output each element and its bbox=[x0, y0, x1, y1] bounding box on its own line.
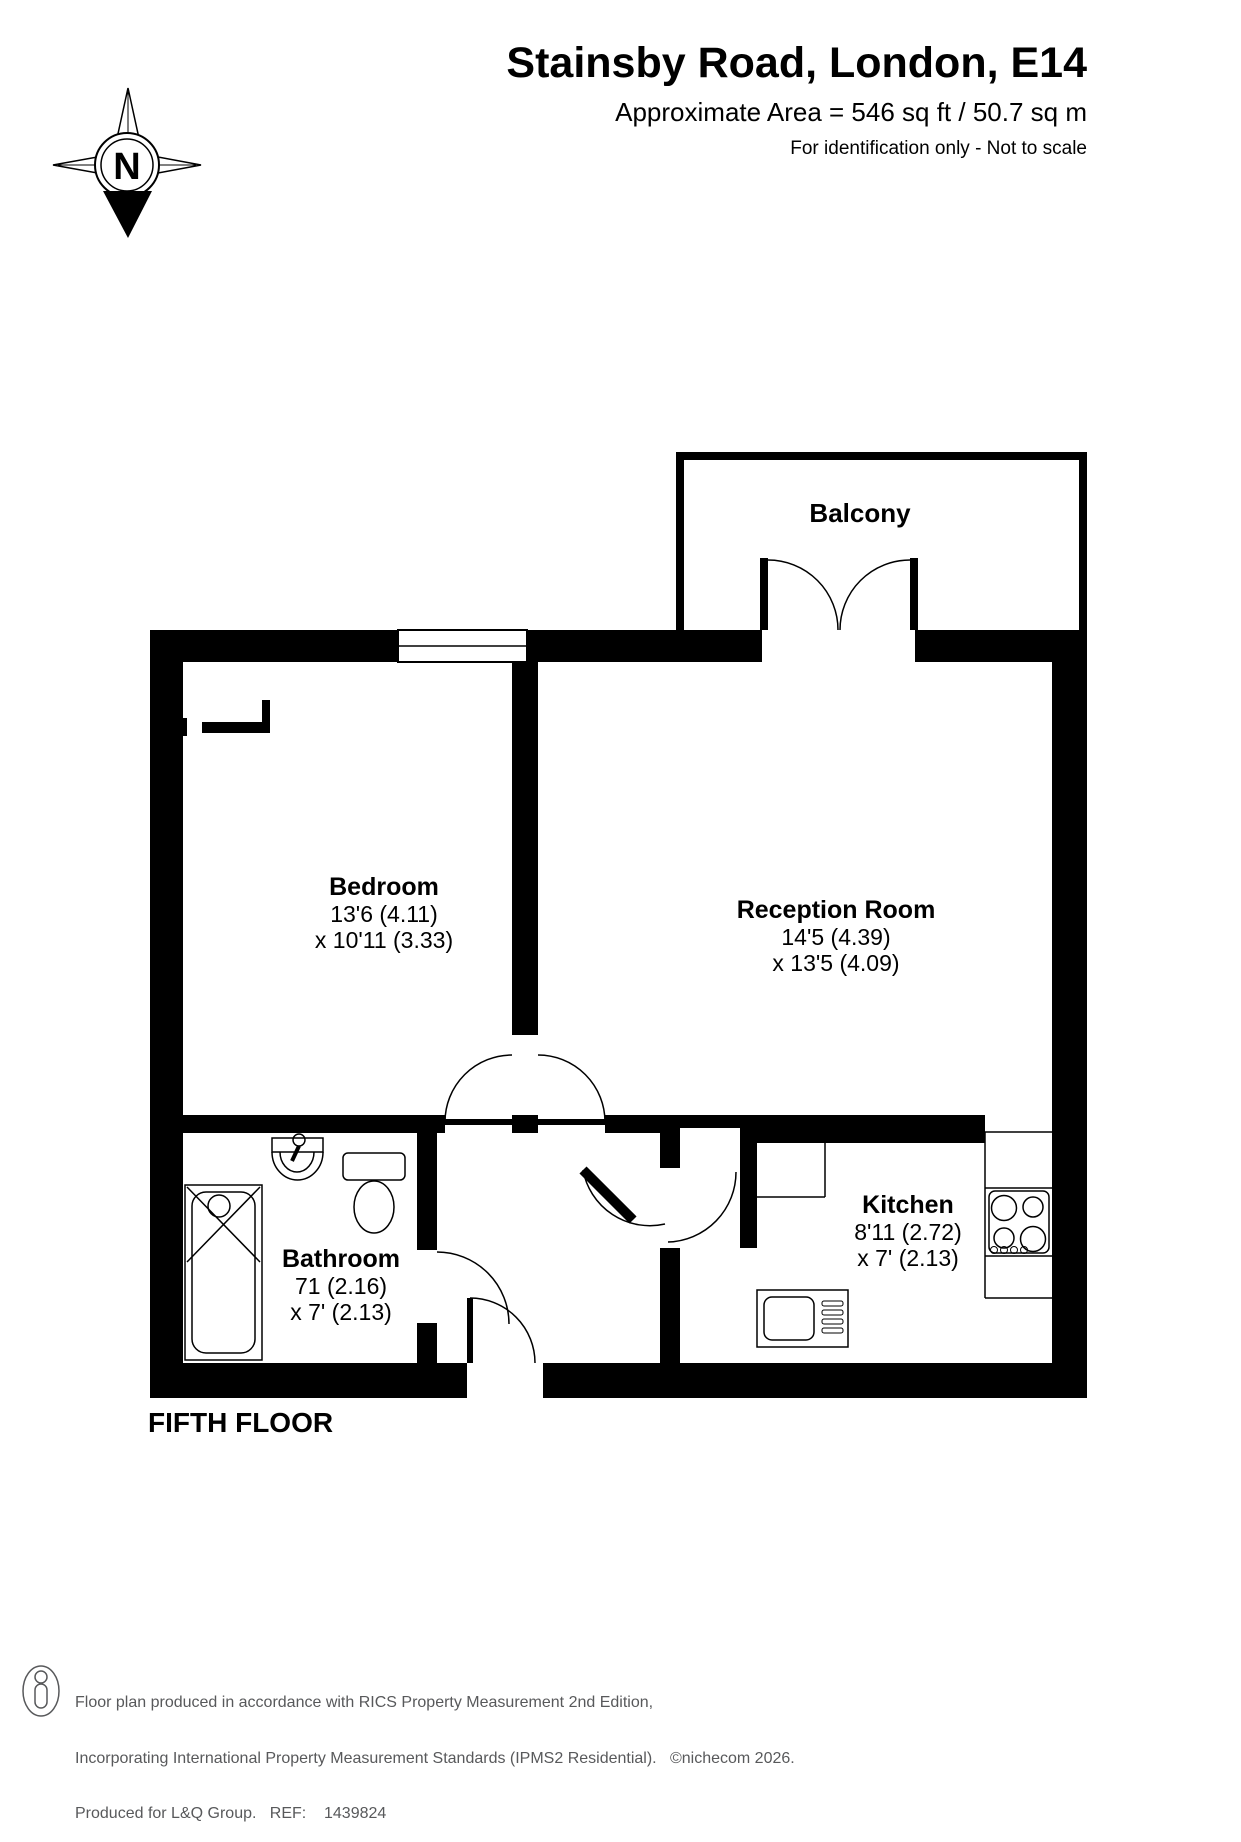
balcony-walls bbox=[676, 452, 1087, 630]
approximate-area: Approximate Area = 546 sq ft / 50.7 sq m bbox=[0, 97, 1087, 128]
floor-label: FIFTH FLOOR bbox=[148, 1407, 333, 1439]
entrance-door-arc bbox=[470, 1298, 535, 1363]
room-name: Kitchen bbox=[854, 1192, 962, 1219]
kitchen-label: Kitchen 8'11 (2.72) x 7' (2.13) bbox=[854, 1192, 962, 1271]
kitchen-doorway-arc bbox=[668, 1172, 736, 1242]
footer-line-3: Produced for L&Q Group. REF: 1439824 bbox=[75, 1805, 795, 1824]
balcony-label: Balcony bbox=[809, 498, 910, 529]
footer-line-2: Incorporating International Property Mea… bbox=[75, 1750, 795, 1769]
room-dimensions: x 7' (2.13) bbox=[854, 1245, 962, 1271]
bathtub bbox=[185, 1185, 262, 1360]
footer: Floor plan produced in accordance with R… bbox=[75, 1657, 795, 1842]
footer-line-1: Floor plan produced in accordance with R… bbox=[75, 1694, 795, 1713]
header: Stainsby Road, London, E14 Approximate A… bbox=[0, 40, 1087, 160]
window bbox=[398, 630, 527, 662]
room-dimensions: x 10'11 (3.33) bbox=[315, 927, 453, 953]
floorplan-drawing: N bbox=[0, 0, 1241, 1755]
kitchen-door-leaf bbox=[583, 1170, 633, 1220]
room-name: Balcony bbox=[809, 498, 910, 529]
toilet bbox=[343, 1153, 405, 1233]
room-dimensions: 13'6 (4.11) bbox=[315, 901, 453, 927]
entrance-door-leaf bbox=[467, 1298, 473, 1363]
doors bbox=[437, 1055, 736, 1363]
room-dimensions: x 13'5 (4.09) bbox=[737, 950, 936, 976]
reception-door-leaf bbox=[538, 1119, 605, 1125]
bathroom-sink bbox=[272, 1134, 323, 1180]
reception-door-arc bbox=[538, 1055, 605, 1122]
room-dimensions: x 7' (2.13) bbox=[282, 1299, 400, 1325]
room-dimensions: 14'5 (4.39) bbox=[737, 924, 936, 950]
bedroom-label: Bedroom 13'6 (4.11) x 10'11 (3.33) bbox=[315, 874, 453, 953]
bedroom-door-leaf bbox=[445, 1119, 512, 1125]
room-dimensions: 71 (2.16) bbox=[282, 1273, 400, 1299]
reception-room-label: Reception Room 14'5 (4.39) x 13'5 (4.09) bbox=[737, 897, 936, 976]
bedroom-door-arc bbox=[445, 1055, 512, 1122]
room-name: Bathroom bbox=[282, 1246, 400, 1273]
person-scale-icon bbox=[18, 1662, 78, 1732]
page-title: Stainsby Road, London, E14 bbox=[0, 40, 1087, 87]
bathroom-label: Bathroom 71 (2.16) x 7' (2.13) bbox=[282, 1246, 400, 1325]
disclaimer-note: For identification only - Not to scale bbox=[0, 138, 1087, 160]
balcony-french-doors bbox=[768, 560, 910, 630]
kitchen-sink-icon bbox=[757, 1290, 848, 1347]
stove-icon bbox=[989, 1191, 1049, 1254]
room-dimensions: 8'11 (2.72) bbox=[854, 1219, 962, 1245]
room-name: Bedroom bbox=[315, 874, 453, 901]
room-name: Reception Room bbox=[737, 897, 936, 924]
